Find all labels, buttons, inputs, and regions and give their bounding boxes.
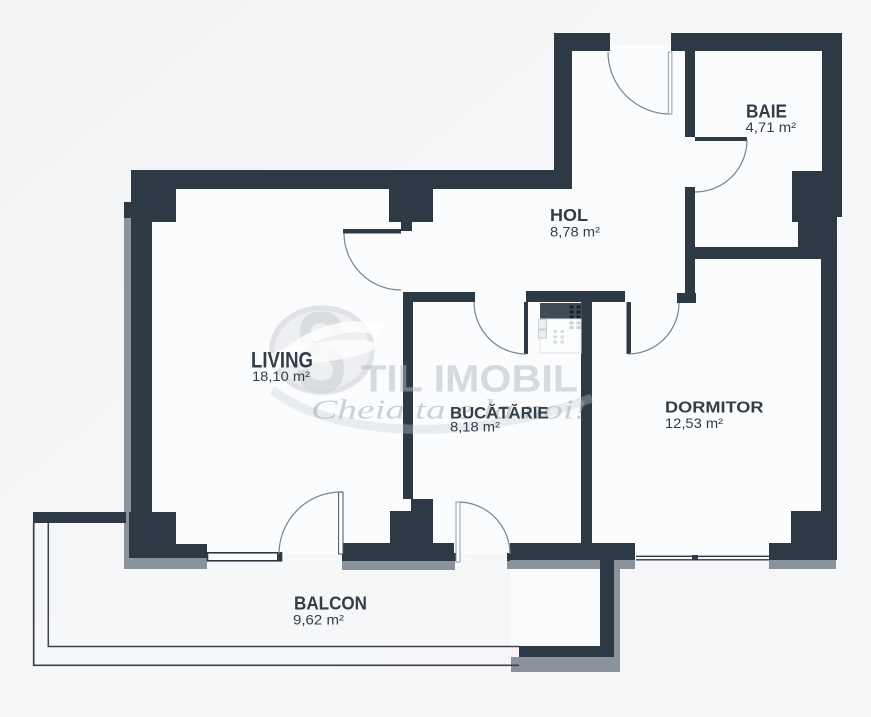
svg-text:DORMITOR: DORMITOR	[665, 399, 764, 416]
svg-text:HOL: HOL	[550, 205, 588, 225]
svg-text:12,53 m²: 12,53 m²	[665, 415, 723, 431]
svg-text:8,18 m²: 8,18 m²	[450, 419, 500, 435]
svg-text:4,71 m²: 4,71 m²	[746, 119, 797, 135]
svg-text:8,78 m²: 8,78 m²	[550, 223, 600, 239]
svg-text:BALCON: BALCON	[294, 593, 367, 614]
svg-text:18,10 m²: 18,10 m²	[252, 369, 310, 384]
svg-text:9,62 m²: 9,62 m²	[293, 612, 344, 628]
